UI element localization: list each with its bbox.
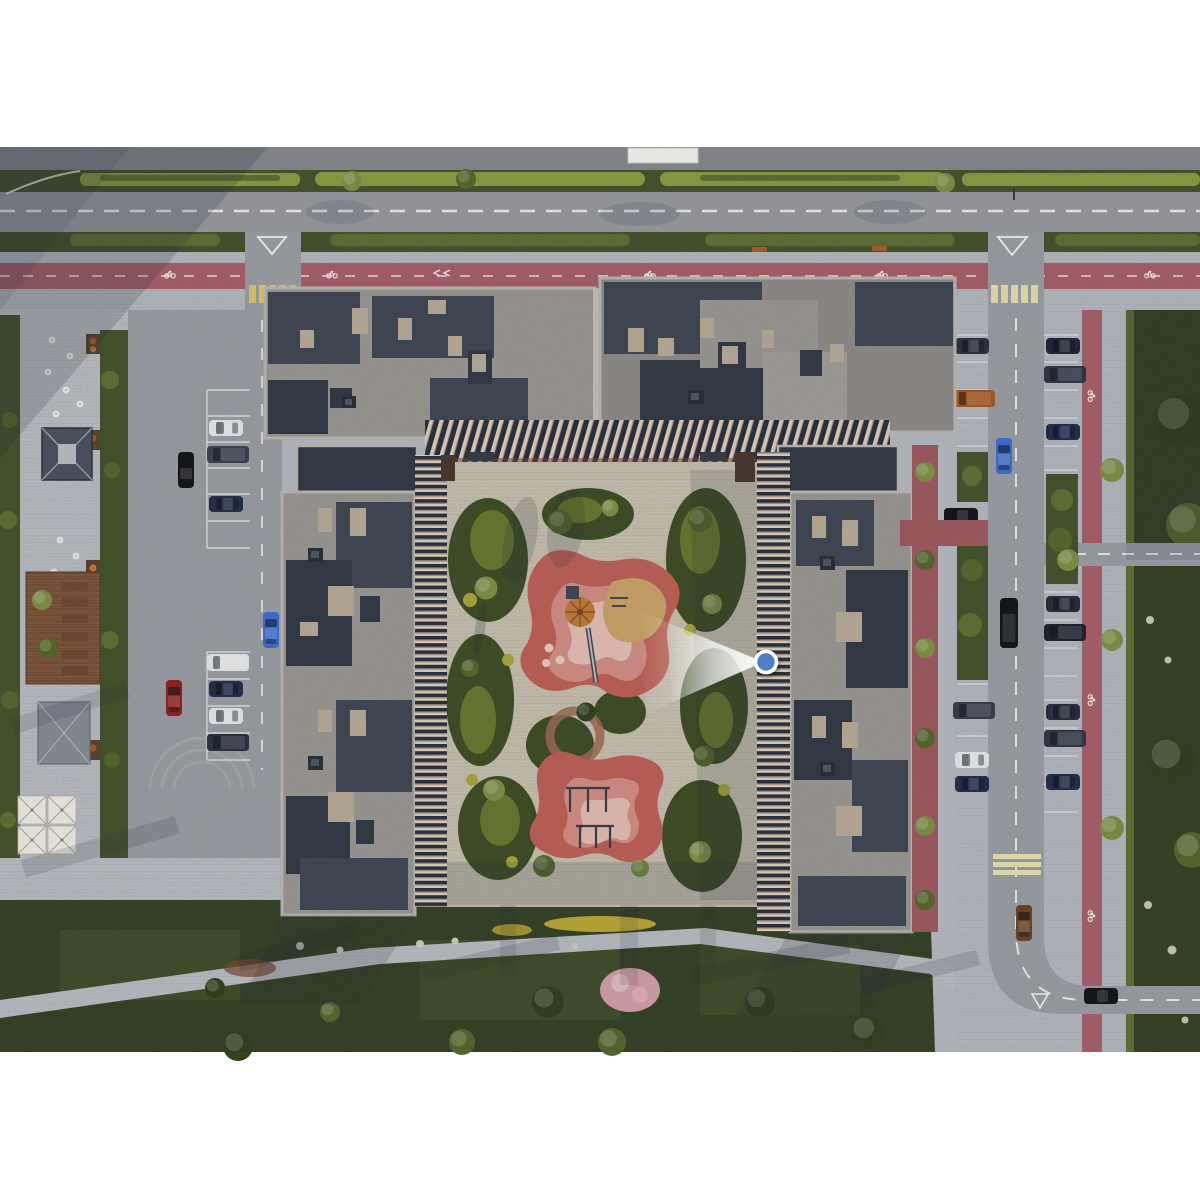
- aerial-render-page: [0, 0, 1200, 1200]
- aerial-site-render: [0, 0, 1200, 1200]
- viewpoint-dot-icon[interactable]: [756, 652, 777, 673]
- render-content: [0, 147, 1200, 1061]
- film-grain: [0, 147, 1200, 1052]
